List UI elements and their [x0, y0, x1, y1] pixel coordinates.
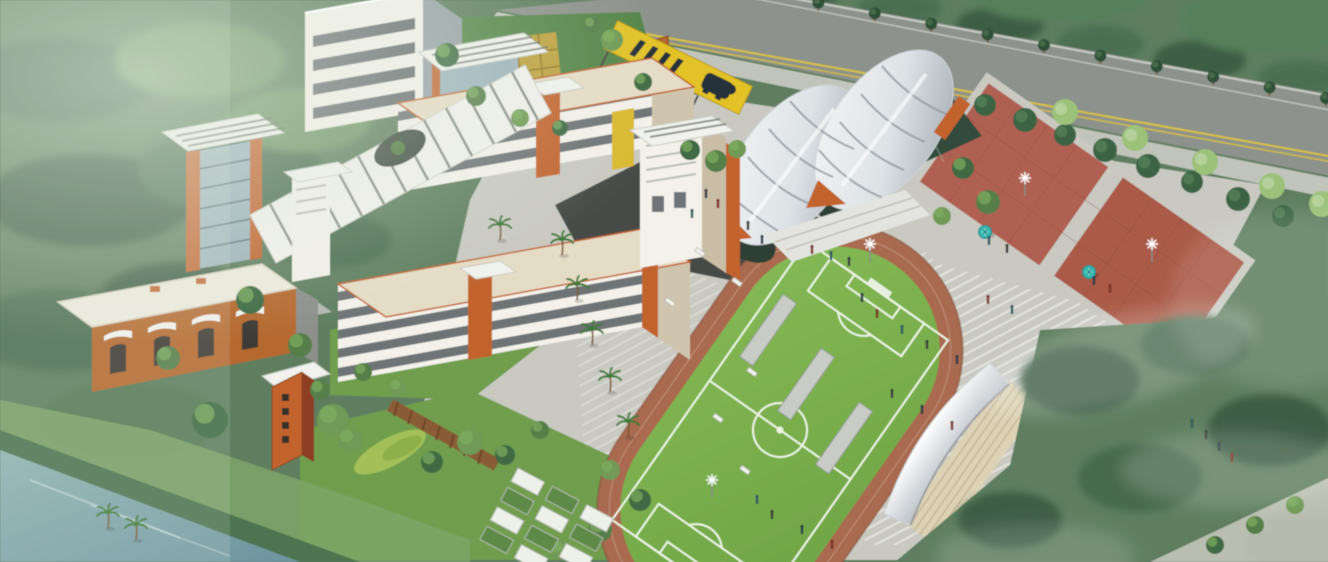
campus-tree [531, 421, 549, 439]
campus-tree [933, 207, 951, 225]
person [890, 389, 893, 398]
campus-tree [421, 451, 443, 473]
person [900, 325, 903, 334]
person [1005, 244, 1008, 253]
campus-tree [1246, 516, 1264, 534]
person [746, 221, 749, 230]
stair-tower-window [674, 192, 686, 208]
person [950, 421, 953, 430]
person [847, 257, 850, 266]
campus-tree [310, 380, 330, 400]
campus-tree [338, 428, 362, 452]
campus-tree [600, 460, 620, 480]
hedge-tree [1181, 171, 1203, 193]
campus-tree [976, 190, 1000, 214]
hedge-tree [1226, 187, 1250, 211]
campus-tree [354, 363, 372, 381]
person [1010, 305, 1013, 314]
hedge-tree [1136, 154, 1160, 178]
scene-root [0, 0, 1328, 562]
person [800, 525, 803, 534]
person [987, 236, 990, 245]
person [955, 355, 958, 364]
hedge-tree [1054, 124, 1076, 146]
campus-scene [0, 0, 1328, 562]
campus-aerial-rendering [0, 0, 1328, 562]
round-tree [1122, 125, 1148, 151]
person [810, 245, 813, 254]
campus-tree [495, 445, 515, 465]
hedge-tree [1013, 108, 1037, 132]
person [716, 199, 719, 208]
hedge-tree [974, 94, 996, 116]
campus-tree [952, 157, 974, 179]
person [1190, 419, 1193, 428]
person [830, 540, 833, 549]
campus-tree [680, 140, 700, 160]
person [920, 405, 923, 414]
campus-tree [728, 140, 746, 158]
round-tree [1052, 99, 1078, 125]
person [1108, 284, 1111, 293]
person [875, 309, 878, 318]
campus-tree [389, 379, 407, 397]
round-tree [1259, 173, 1285, 199]
person [1092, 276, 1095, 285]
person [860, 293, 863, 302]
hedge-tree [1093, 138, 1117, 162]
person [829, 251, 832, 260]
campus-tree [1206, 536, 1224, 554]
person [925, 340, 928, 349]
campus-tree [629, 489, 651, 511]
person [704, 189, 707, 198]
link-tower-front [272, 372, 302, 470]
person [986, 295, 989, 304]
haze-left-band [0, 0, 230, 562]
person [755, 495, 758, 504]
campus-tree [705, 150, 727, 172]
person [760, 235, 763, 244]
campus-tree [457, 429, 483, 455]
person [770, 510, 773, 519]
person [690, 209, 693, 218]
round-tree [1192, 149, 1218, 175]
